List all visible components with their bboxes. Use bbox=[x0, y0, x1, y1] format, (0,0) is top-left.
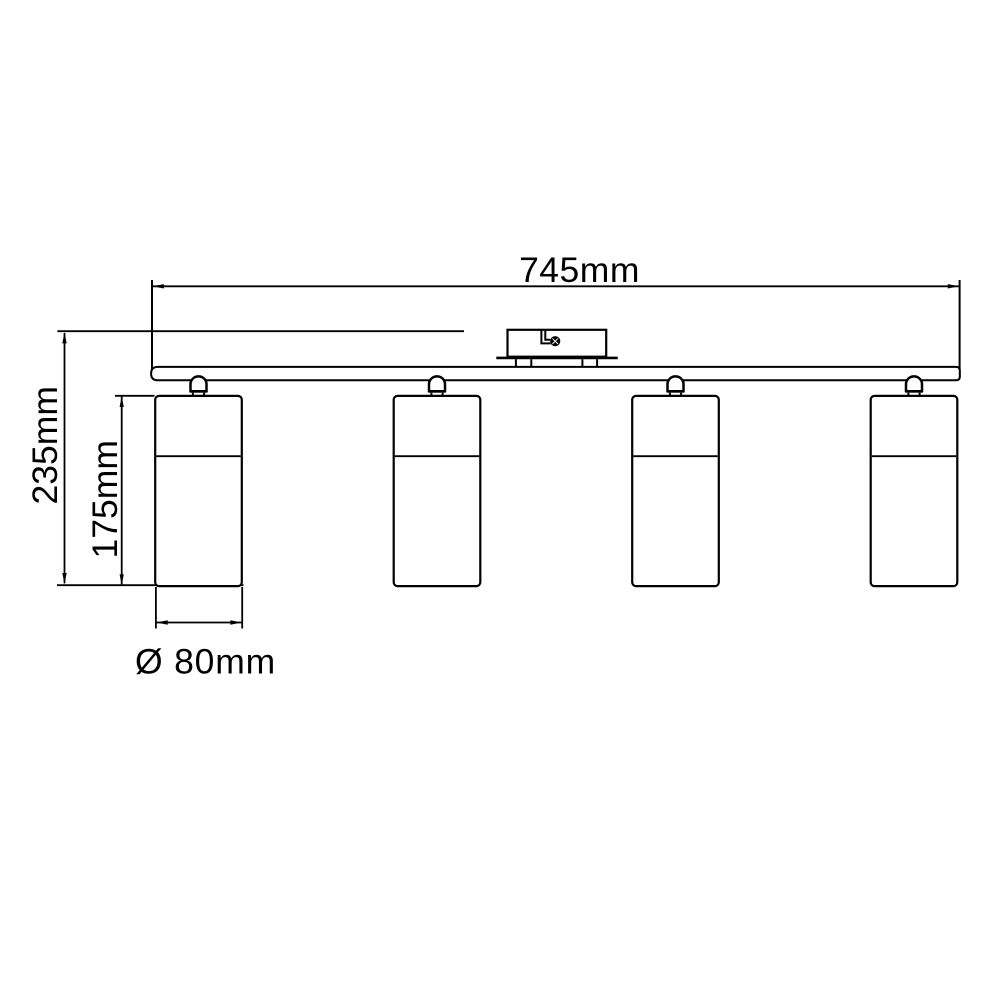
svg-text:175mm: 175mm bbox=[85, 440, 125, 558]
svg-text:Ø 80mm: Ø 80mm bbox=[135, 642, 276, 682]
svg-text:235mm: 235mm bbox=[25, 386, 65, 504]
svg-text:745mm: 745mm bbox=[519, 250, 640, 290]
